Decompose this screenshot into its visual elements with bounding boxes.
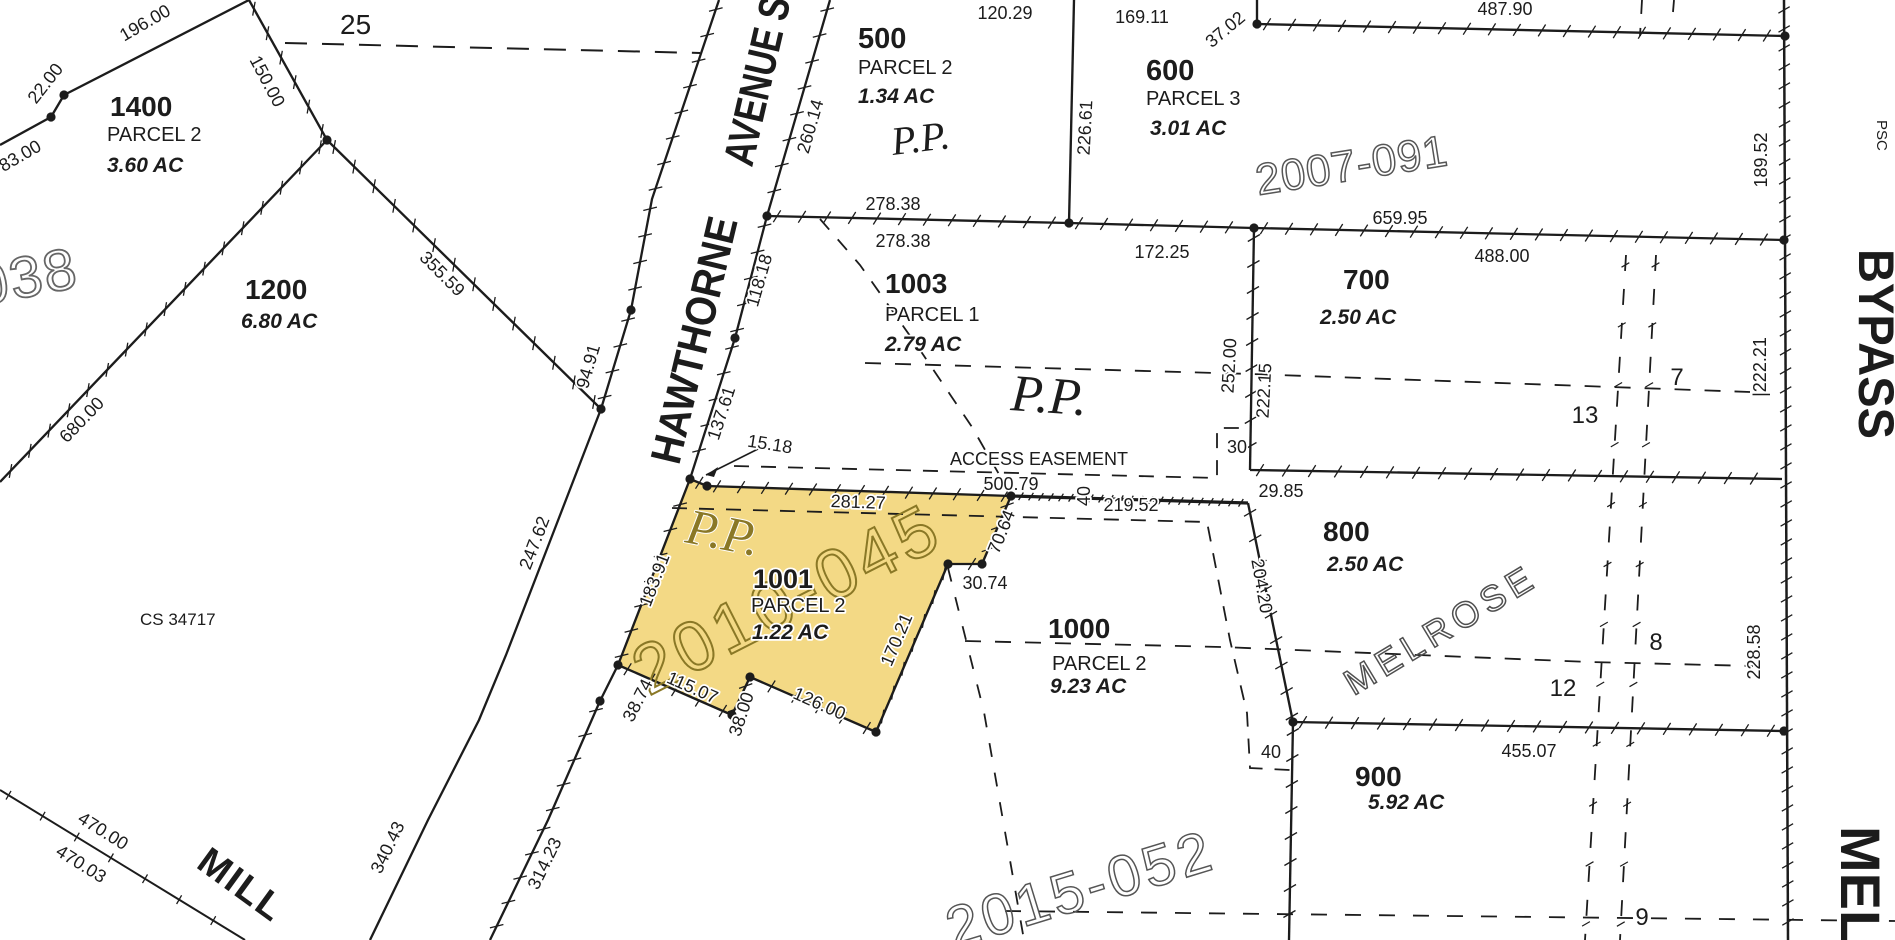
svg-text:1000: 1000	[1048, 613, 1110, 644]
svg-text:P.P.: P.P.	[888, 112, 953, 164]
svg-text:PARCEL 2: PARCEL 2	[751, 595, 845, 617]
svg-text:BYPASS: BYPASS	[1848, 249, 1895, 439]
svg-text:2.50 AC: 2.50 AC	[1319, 306, 1397, 329]
svg-text:PARCEL 2: PARCEL 2	[1052, 653, 1146, 675]
svg-text:P.P.: P.P.	[1008, 365, 1089, 427]
svg-text:2.50 AC: 2.50 AC	[1326, 553, 1404, 576]
svg-text:1001: 1001	[753, 564, 813, 594]
svg-text:9: 9	[1635, 904, 1648, 931]
svg-text:MELROSE: MELROSE	[1829, 826, 1892, 940]
svg-text:6.80 AC: 6.80 AC	[241, 310, 318, 333]
svg-text:30.74: 30.74	[962, 573, 1007, 593]
svg-text:169.11: 169.11	[1115, 7, 1169, 27]
svg-text:PARCEL 3: PARCEL 3	[1146, 88, 1240, 110]
svg-text:455.07: 455.07	[1501, 741, 1556, 761]
svg-text:1003: 1003	[885, 268, 947, 299]
svg-text:659.95: 659.95	[1372, 208, 1427, 228]
svg-text:PARCEL 2: PARCEL 2	[107, 124, 201, 146]
svg-text:25: 25	[340, 9, 371, 40]
svg-text:2.79 AC: 2.79 AC	[884, 333, 962, 356]
svg-text:ACCESS EASEMENT: ACCESS EASEMENT	[950, 449, 1128, 469]
svg-text:13: 13	[1572, 402, 1599, 429]
svg-text:600: 600	[1146, 55, 1194, 87]
svg-text:900: 900	[1355, 761, 1402, 792]
svg-text:700: 700	[1343, 264, 1390, 295]
svg-text:228.58: 228.58	[1744, 624, 1764, 679]
svg-text:1.22 AC: 1.22 AC	[752, 621, 829, 644]
svg-text:1400: 1400	[110, 91, 172, 122]
svg-text:PSC: PSC	[1873, 120, 1890, 151]
svg-text:7: 7	[1670, 364, 1683, 391]
svg-text:|222.21: |222.21	[1750, 337, 1770, 397]
svg-text:12: 12	[1550, 675, 1577, 702]
svg-text:172.25: 172.25	[1134, 242, 1189, 262]
svg-text:189.52: 189.52	[1751, 132, 1771, 187]
svg-text:120.29: 120.29	[977, 3, 1032, 23]
svg-text:278.38: 278.38	[875, 231, 930, 251]
svg-text:226.61: 226.61	[1074, 100, 1097, 156]
svg-text:487.90: 487.90	[1477, 0, 1532, 19]
svg-text:222.15: 222.15	[1253, 363, 1276, 419]
svg-text:29.85: 29.85	[1258, 481, 1303, 501]
svg-text:5.92 AC: 5.92 AC	[1368, 791, 1445, 814]
svg-text:1200: 1200	[245, 274, 307, 305]
svg-text:800: 800	[1323, 516, 1370, 547]
svg-text:488.00: 488.00	[1474, 246, 1529, 266]
svg-text:3.60 AC: 3.60 AC	[107, 154, 184, 177]
svg-text:PARCEL 1: PARCEL 1	[885, 304, 979, 326]
svg-text:PARCEL 2: PARCEL 2	[858, 57, 952, 79]
svg-text:500: 500	[858, 23, 906, 55]
svg-text:8: 8	[1649, 629, 1662, 656]
svg-text:278.38: 278.38	[865, 194, 920, 214]
svg-text:500.79: 500.79	[983, 474, 1038, 494]
svg-text:9.23 AC: 9.23 AC	[1050, 675, 1127, 698]
svg-text:1.34 AC: 1.34 AC	[858, 85, 935, 108]
svg-text:3.01 AC: 3.01 AC	[1150, 117, 1227, 140]
svg-text:40: 40	[1074, 486, 1094, 506]
svg-text:281.27: 281.27	[830, 491, 886, 513]
svg-text:219.52: 219.52	[1103, 495, 1158, 515]
svg-text:30: 30	[1227, 437, 1247, 457]
svg-text:40: 40	[1261, 742, 1281, 762]
svg-text:CS 34717: CS 34717	[140, 610, 216, 629]
svg-text:252.00: 252.00	[1218, 338, 1241, 394]
